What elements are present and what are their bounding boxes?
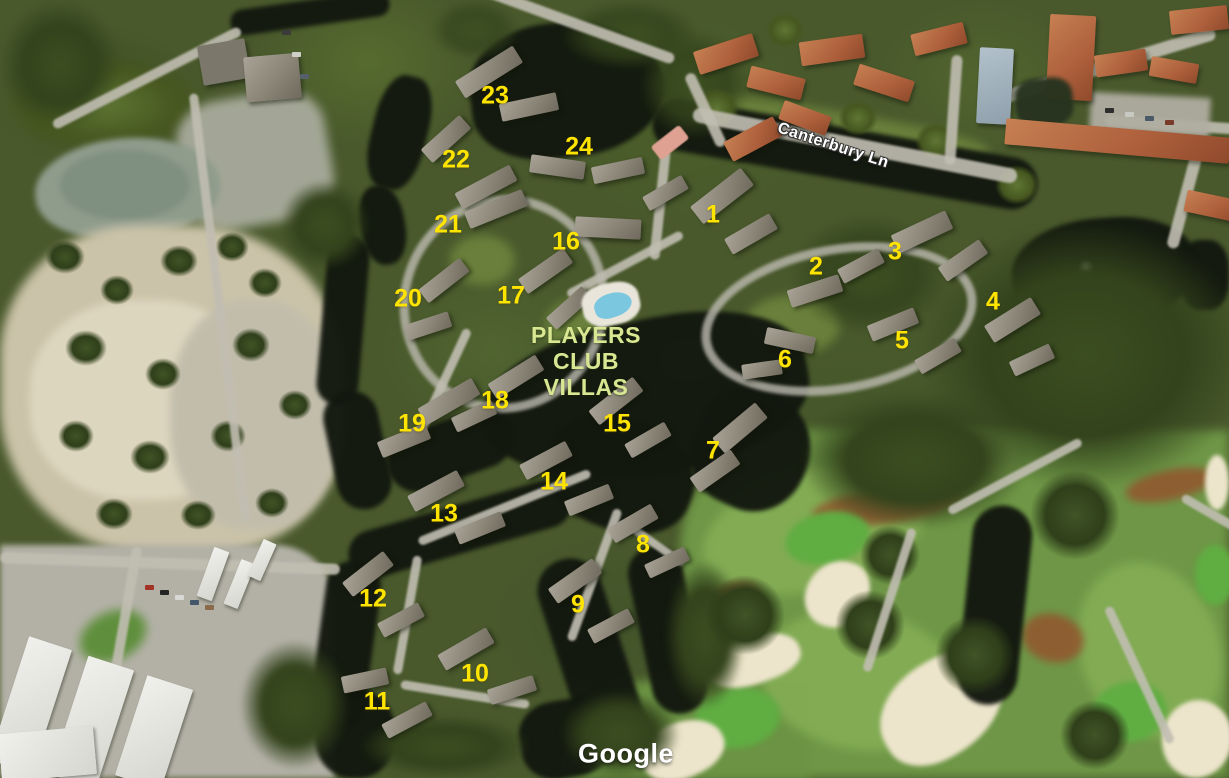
villa-marker-7: 7 [706,439,720,464]
t-shape [705,575,785,655]
t-shape [45,240,85,274]
b-shape [575,216,642,239]
villa-marker-17: 17 [497,284,525,309]
t2-shape [838,100,878,136]
villa-marker-12: 12 [359,587,387,612]
place-label: PLAYERS CLUB VILLAS [531,322,641,400]
villa-marker-6: 6 [778,348,792,373]
t-shape [130,440,170,474]
gr-shape [1195,545,1229,605]
b-shape [690,168,754,225]
w-shape [229,0,391,37]
b-shape [243,53,302,103]
t-shape [1060,700,1130,770]
tb-shape [1183,190,1229,223]
villa-marker-15: 15 [603,412,631,437]
car-shape [160,590,169,595]
car-shape [205,605,214,610]
t-shape [215,232,249,262]
w-shape [359,70,440,195]
villa-marker-16: 16 [552,230,580,255]
google-watermark: Google [578,739,674,770]
map-canvas[interactable]: Canterbury Ln PLAYERS CLUB VILLAS 123456… [0,0,1229,778]
fm-shape [280,180,370,270]
t-shape [95,498,133,530]
fm-shape [800,390,1030,530]
t-shape [232,328,270,362]
tb-shape [799,34,866,67]
villa-marker-14: 14 [540,470,568,495]
t-shape [145,358,181,390]
t-shape [65,330,107,366]
villa-marker-13: 13 [430,502,458,527]
fm-shape [240,640,350,770]
t-shape [248,268,282,298]
tb-shape [1149,56,1200,84]
car-shape [145,585,154,590]
place-label-line2: CLUB [531,348,641,374]
t-shape [100,275,134,305]
place-label-line1: PLAYERS [531,322,641,348]
t-shape [160,245,198,277]
villa-marker-2: 2 [809,255,823,280]
villa-marker-3: 3 [888,240,902,265]
tb-shape [853,64,915,103]
t-shape [1030,470,1120,560]
villa-marker-10: 10 [461,662,489,687]
villa-marker-5: 5 [895,329,909,354]
villa-marker-21: 21 [434,213,462,238]
tb-shape [1094,48,1149,77]
car-shape [292,52,301,57]
tb-shape [1169,5,1229,35]
villa-marker-4: 4 [986,290,1000,315]
t-shape [255,488,289,518]
villa-marker-8: 8 [636,533,650,558]
wl-shape [60,150,190,220]
villa-marker-19: 19 [398,412,426,437]
villa-marker-1: 1 [706,203,720,228]
car-shape [175,595,184,600]
villa-marker-18: 18 [481,389,509,414]
car-shape [300,74,309,79]
villa-marker-9: 9 [571,593,585,618]
t-shape [180,500,216,530]
villa-marker-23: 23 [481,84,509,109]
car-shape [1125,112,1134,117]
villa-marker-11: 11 [364,690,390,715]
car-shape [1145,116,1154,121]
fm-shape [0,0,120,130]
villa-marker-20: 20 [394,287,422,312]
wb-shape [0,726,97,778]
b-shape [591,157,645,184]
villa-marker-24: 24 [565,135,593,160]
t-shape [278,390,312,420]
villa-marker-22: 22 [442,148,470,173]
tb-shape [910,22,968,56]
car-shape [282,30,291,35]
car-shape [1165,120,1174,125]
tb-shape [746,66,806,101]
car-shape [190,600,199,605]
t-shape [58,420,94,452]
bb-shape [976,47,1014,125]
car-shape [1105,108,1114,113]
place-label-line3: VILLAS [531,374,641,400]
b-shape [724,213,778,255]
t-shape [935,615,1015,695]
